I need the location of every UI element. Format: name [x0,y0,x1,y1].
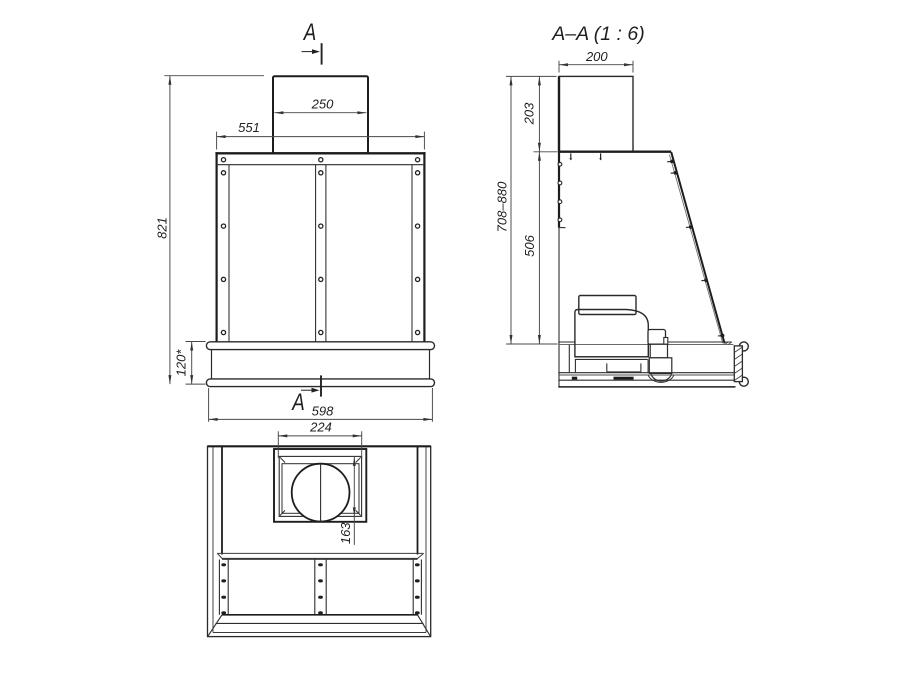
svg-text:821: 821 [155,217,170,239]
svg-text:224: 224 [309,420,332,435]
svg-text:120*: 120* [174,349,189,377]
svg-text:598: 598 [312,403,334,418]
svg-text:A: A [291,389,305,416]
svg-text:200: 200 [585,49,608,64]
svg-text:506: 506 [522,234,537,256]
svg-text:250: 250 [311,97,334,112]
svg-text:163: 163 [338,522,353,544]
svg-text:203: 203 [522,102,537,125]
svg-text:A: A [302,19,316,46]
svg-text:551: 551 [238,120,260,135]
svg-text:A–A (1 : 6): A–A (1 : 6) [551,23,644,45]
svg-text:708–880: 708–880 [494,181,509,232]
